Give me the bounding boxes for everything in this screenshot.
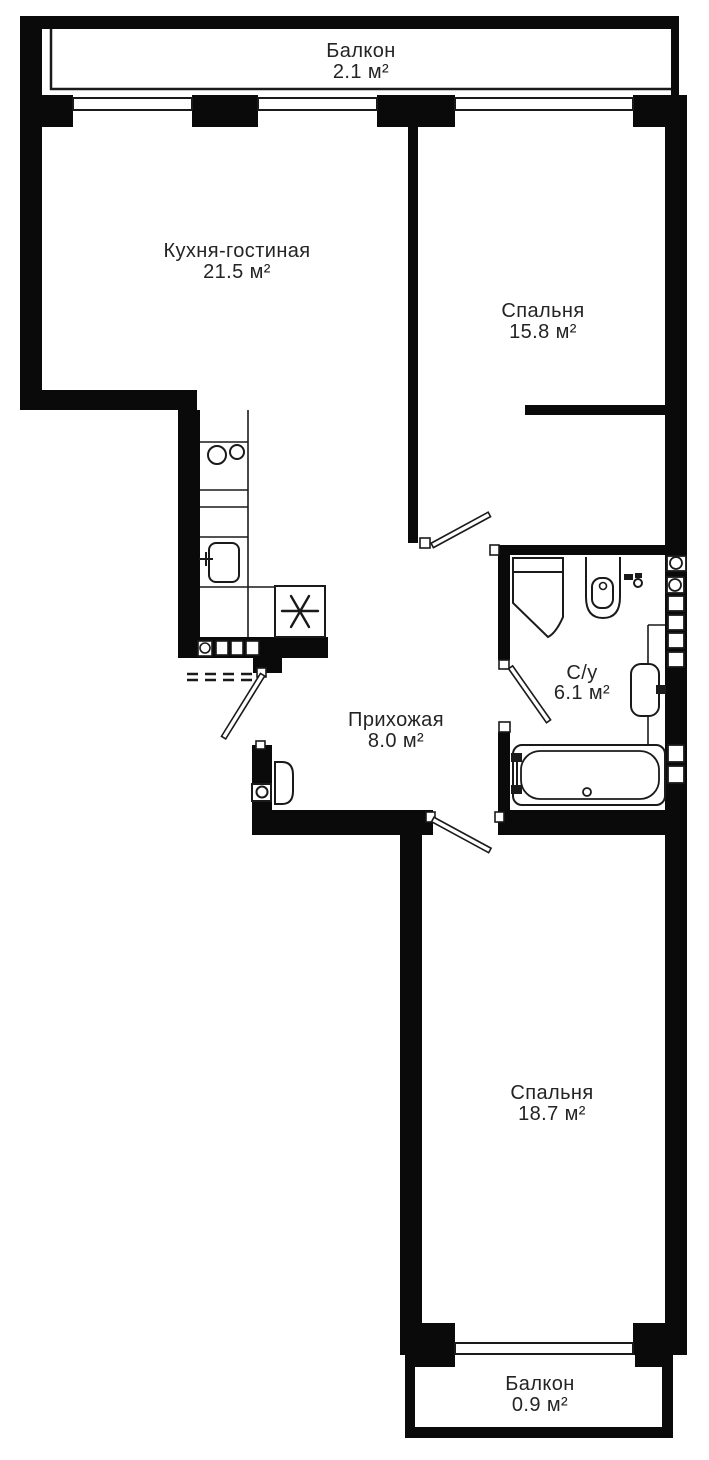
entrance-dashed-line (187, 674, 256, 680)
wall-bathroom-left-upper (498, 555, 510, 660)
floor-plan-drawing: Балкон 2.1 м² Кухня-гостиная 21.5 м² Спа… (0, 0, 709, 1460)
room-area-bedroom-1: 15.8 м² (509, 321, 577, 343)
room-label-bathroom: С/у (566, 662, 597, 684)
floor-plan: Балкон 2.1 м² Кухня-гостиная 21.5 м² Спа… (0, 0, 709, 1460)
wall-balcony-top-right (671, 16, 679, 95)
room-area-hallway: 8.0 м² (368, 730, 424, 752)
wall-right-outer (665, 95, 687, 1355)
kitchen-low-cabinets (198, 641, 259, 656)
wall-hallway-bottom (252, 810, 433, 835)
balcony2-wall-right (662, 1355, 673, 1438)
jamb-bedroom1 (420, 538, 430, 548)
door-leaf-bedroom2 (432, 817, 492, 852)
toilet (586, 557, 620, 618)
room-label-balcony-bottom: Балкон (505, 1373, 574, 1395)
wall-bathroom-bottom (498, 810, 687, 835)
wall-kitchen-bottom (20, 390, 197, 410)
door-leaf-bedroom1 (431, 512, 491, 547)
room-area-bathroom: 6.1 м² (554, 682, 610, 704)
bathtub (511, 745, 665, 805)
room-area-balcony-bottom: 0.9 м² (512, 1394, 568, 1416)
window-kitchen-2 (258, 98, 377, 110)
room-label-bedroom-1: Спальня (501, 300, 584, 322)
room-area-balcony-top: 2.1 м² (333, 61, 389, 83)
wall-top-band (20, 16, 679, 29)
door-jambs (256, 538, 510, 822)
wall-bedroom2-left (400, 835, 422, 1355)
washing-machine (275, 586, 325, 637)
room-label-kitchen-living: Кухня-гостиная (163, 240, 310, 262)
jamb-bedroom1 (490, 545, 499, 555)
room-label-hallway: Прихожая (348, 709, 444, 731)
window-bedroom1 (455, 98, 633, 110)
wall-pier (192, 95, 258, 127)
water-valves (624, 573, 642, 587)
balcony2-wall-left (405, 1355, 415, 1438)
sink-tap (656, 685, 666, 694)
window-kitchen-1 (73, 98, 192, 110)
wall-bedroom1-bottom (492, 545, 665, 555)
wall-pier (42, 95, 73, 127)
room-label-bedroom-2: Спальня (510, 1082, 593, 1104)
cooktop (208, 445, 244, 464)
wall-kitchen-inner (178, 410, 200, 657)
room-label-balcony-top: Балкон (326, 40, 395, 62)
door-leaf-bathroom (509, 666, 551, 723)
wall-left-outer (20, 16, 42, 410)
jamb-bathroom (499, 722, 510, 732)
window-bedroom2 (455, 1343, 633, 1354)
radiator (275, 762, 293, 804)
jamb-entrance (256, 741, 265, 749)
balcony2-wall-bottom (405, 1427, 673, 1438)
bathroom-sink (631, 625, 666, 745)
shower (513, 558, 563, 637)
door-leaf-entrance (221, 673, 264, 739)
wall-bedroom1-stub (525, 405, 665, 415)
jamb-bathroom (499, 660, 509, 669)
room-area-kitchen-living: 21.5 м² (203, 261, 271, 283)
wall-pier (400, 1323, 455, 1355)
wall-bathroom-left-lower (498, 732, 510, 810)
wall-pier (633, 1323, 687, 1355)
wall-pier (377, 95, 455, 127)
jamb-bedroom2 (495, 812, 504, 822)
room-area-bedroom-2: 18.7 м² (518, 1103, 586, 1125)
wall-divider-bedroom1 (408, 127, 418, 543)
kitchen-sink (199, 543, 239, 582)
